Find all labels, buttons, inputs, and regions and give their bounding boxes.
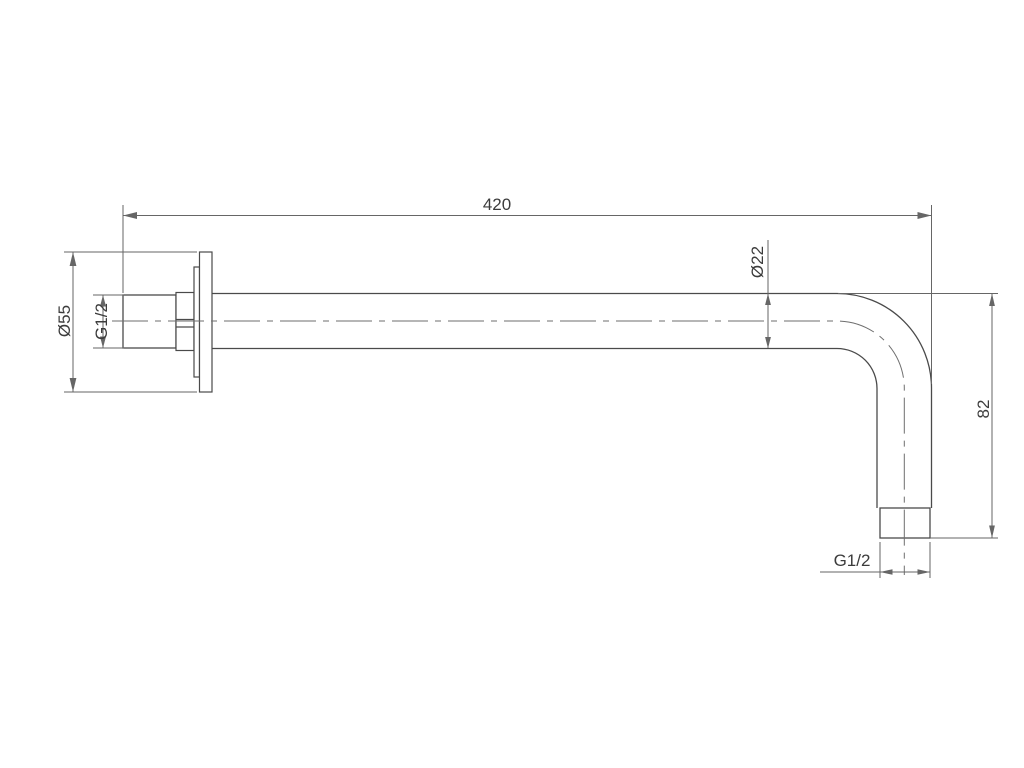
dimension-overall-length: 420 <box>123 195 932 384</box>
arrowhead-left <box>880 569 893 575</box>
dimension-outlet-thread: G1/2 <box>820 542 930 578</box>
arrowhead-bottom <box>765 337 771 349</box>
arrowhead-top <box>765 294 771 306</box>
flange-diameter-label: Ø55 <box>55 305 74 337</box>
outlet-thread-label: G1/2 <box>834 551 871 570</box>
arrowhead-right <box>918 212 932 219</box>
shower-arm-technical-drawing: 420 Ø55 G1/2 Ø22 <box>0 0 1024 768</box>
dimension-pipe-diameter: Ø22 <box>748 240 771 349</box>
drawing-canvas: 420 Ø55 G1/2 Ø22 <box>0 0 1024 768</box>
flange-outer-plate <box>200 252 213 392</box>
pipe-inner-edge <box>212 349 877 509</box>
arrowhead-top <box>989 294 995 307</box>
pipe-diameter-label: Ø22 <box>748 246 767 278</box>
arrowhead-right <box>918 569 931 575</box>
outlet-drop-label: 82 <box>974 400 993 419</box>
arrowhead-bottom <box>70 378 77 392</box>
pipe-outer-edge <box>212 294 932 509</box>
wall-thread-label: G1/2 <box>92 303 111 340</box>
pipe-centerline <box>112 321 904 575</box>
dimension-outlet-drop: 82 <box>838 294 998 539</box>
arrowhead-left <box>123 212 137 219</box>
arrowhead-bottom <box>989 526 995 539</box>
overall-length-label: 420 <box>483 195 511 214</box>
outlet-thread-section <box>880 508 930 538</box>
arrowhead-top <box>70 252 77 266</box>
flange-inner-plate <box>194 267 200 377</box>
